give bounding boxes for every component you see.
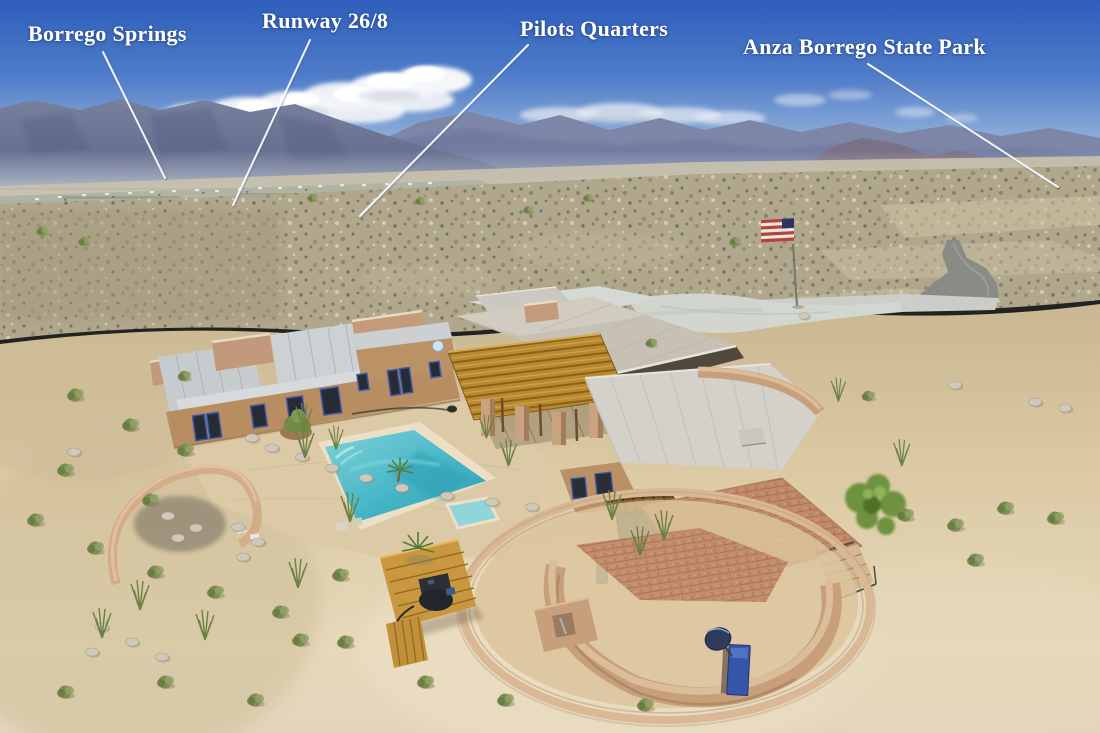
photo-scene xyxy=(0,0,1100,733)
annotated-aerial-photo: Borrego Springs Runway 26/8 Pilots Quart… xyxy=(0,0,1100,733)
annotation-label-borrego-springs: Borrego Springs xyxy=(28,21,187,47)
annotation-label-pilots-quarters: Pilots Quarters xyxy=(520,16,668,42)
flag-canton xyxy=(782,218,794,228)
annotation-label-runway-26-8: Runway 26/8 xyxy=(262,8,388,34)
satellite-dish-roof xyxy=(433,341,444,352)
right-wing-roof xyxy=(585,364,822,470)
annotation-label-anza-borrego-state-park: Anza Borrego State Park xyxy=(743,34,986,60)
